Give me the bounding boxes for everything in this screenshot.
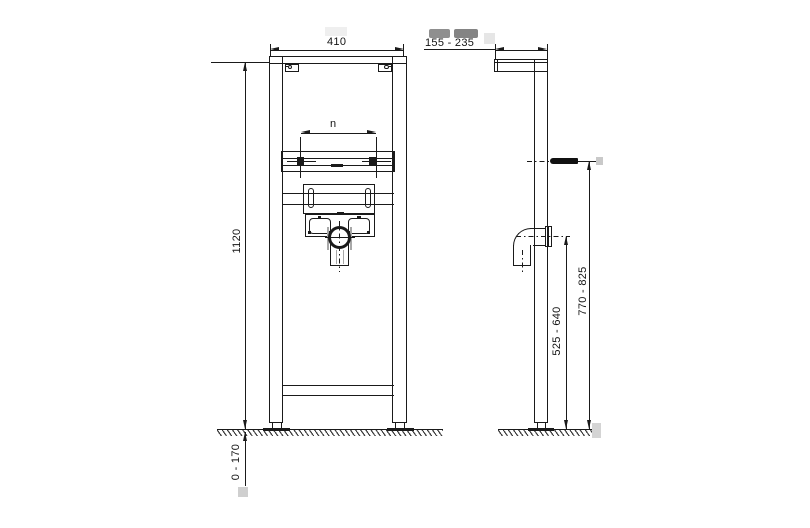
arrowhead <box>564 236 568 245</box>
dim-stud-height-line <box>589 161 590 429</box>
dim-side-depth-label: 155 - 235 <box>425 37 474 49</box>
arrowhead <box>538 47 547 51</box>
gray-marker-floor <box>592 423 601 438</box>
dim-drain-height-label: 525 - 640 <box>551 303 563 359</box>
arrowhead <box>587 161 591 170</box>
floor-contact-post <box>528 428 554 431</box>
dim-stud-height-label: 770 - 825 <box>577 263 589 319</box>
stud-centerline <box>527 161 549 162</box>
elbow-centerline-h <box>516 236 570 237</box>
elbow-centerline-v <box>522 250 523 274</box>
dim-drain-height-line <box>566 236 567 428</box>
arrowhead <box>564 420 568 429</box>
mounting-stud <box>550 158 579 164</box>
dim-side-depth-leader <box>424 49 495 50</box>
redaction-smudge-2 <box>325 27 347 36</box>
wall-bracket-arm-endcap <box>497 59 498 72</box>
elbow-outlet-top <box>530 228 545 229</box>
technical-drawing-canvas: 410 n <box>0 0 810 528</box>
arrowhead <box>495 47 504 51</box>
side-view: 155 - 235 525 - 640 <box>0 0 810 528</box>
arrowhead <box>587 420 591 429</box>
elbow-outlet-bottom <box>533 245 546 246</box>
redaction-smudge-1 <box>484 33 495 44</box>
gray-marker-stud <box>596 157 604 165</box>
floor-hatch-side <box>498 430 595 436</box>
